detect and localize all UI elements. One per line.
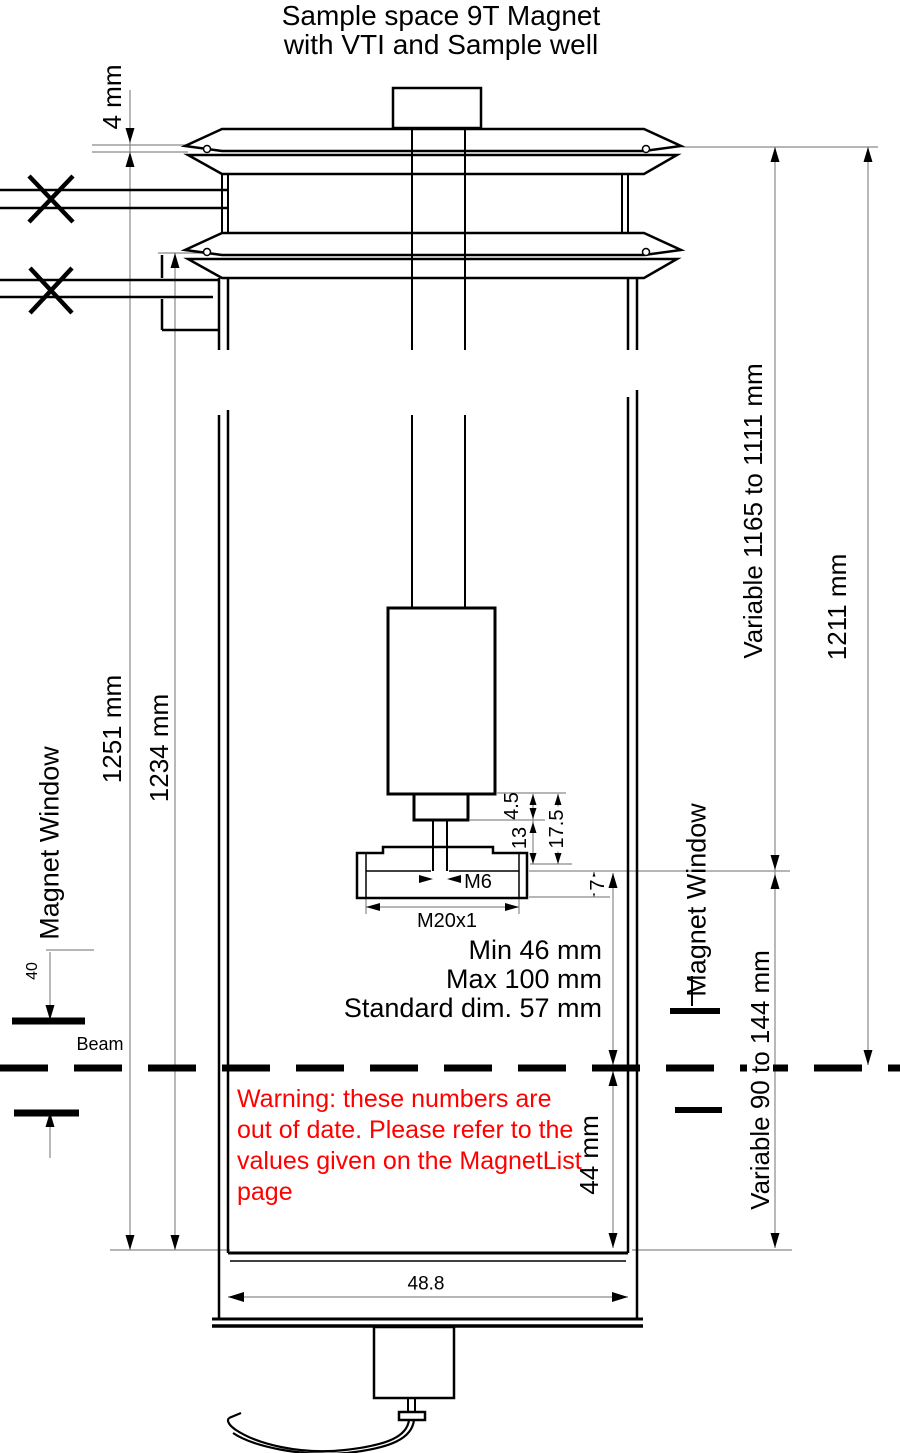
dim-variable-top-label: Variable 1165 to 1111 mm: [740, 363, 766, 658]
warning-line-2: out of date. Please refer to the: [237, 1115, 582, 1146]
diagram-linework: [0, 0, 900, 1453]
top-flange-assembly: [185, 88, 681, 278]
title-line-2: with VTI and Sample well: [282, 30, 601, 59]
bottom-assembly: [228, 1327, 454, 1453]
thread-m20x1-label: M20x1: [417, 911, 477, 931]
warning-line-3: values given on the MagnetList: [237, 1146, 582, 1177]
magnet-window-left-label: Magnet Window: [37, 746, 64, 940]
cable: [228, 1413, 414, 1453]
sample-well-tubes: [412, 128, 465, 607]
magnet-diagram: Sample space 9T Magnet with VTI and Samp…: [0, 0, 900, 1453]
dim-1211mm-label: 1211 mm: [824, 554, 850, 660]
valve-cross-icon: [29, 176, 73, 313]
dim-1234mm-label: 1234 mm: [146, 694, 172, 802]
thread-m6-label: M6: [464, 872, 492, 892]
beam-label: Beam: [76, 1035, 123, 1053]
diagram-title: Sample space 9T Magnet with VTI and Samp…: [282, 1, 601, 59]
sample-space-dims: Min 46 mm Max 100 mm Standard dim. 57 mm: [344, 936, 602, 1023]
sample-holder: [357, 608, 527, 898]
magnet-window-right-label: Magnet Window: [684, 803, 711, 997]
left-pipes: [0, 176, 227, 313]
warning-text: Warning: these numbers are out of date. …: [237, 1084, 582, 1208]
warning-line-1: Warning: these numbers are: [237, 1084, 582, 1115]
dim-1251mm-label: 1251 mm: [99, 675, 125, 783]
dim-13-label: 13: [510, 827, 530, 849]
dim-17p5-label: 17.5: [547, 807, 567, 852]
sample-min-label: Min 46 mm: [344, 936, 602, 965]
dim-4p5-label: 4.5: [502, 792, 522, 820]
title-line-1: Sample space 9T Magnet: [282, 1, 601, 30]
dim-40-label: 40: [25, 962, 41, 980]
dim-7-label: 7: [588, 876, 608, 893]
sample-max-label: Max 100 mm: [344, 965, 602, 994]
sample-standard-label: Standard dim. 57 mm: [344, 994, 602, 1023]
dim-variable-bottom-label: Variable 90 to 144 mm: [747, 947, 773, 1213]
dim-4mm-label: 4 mm: [99, 65, 125, 130]
warning-line-4: page: [237, 1177, 582, 1208]
dim-48p8-label: 48.8: [408, 1275, 445, 1294]
